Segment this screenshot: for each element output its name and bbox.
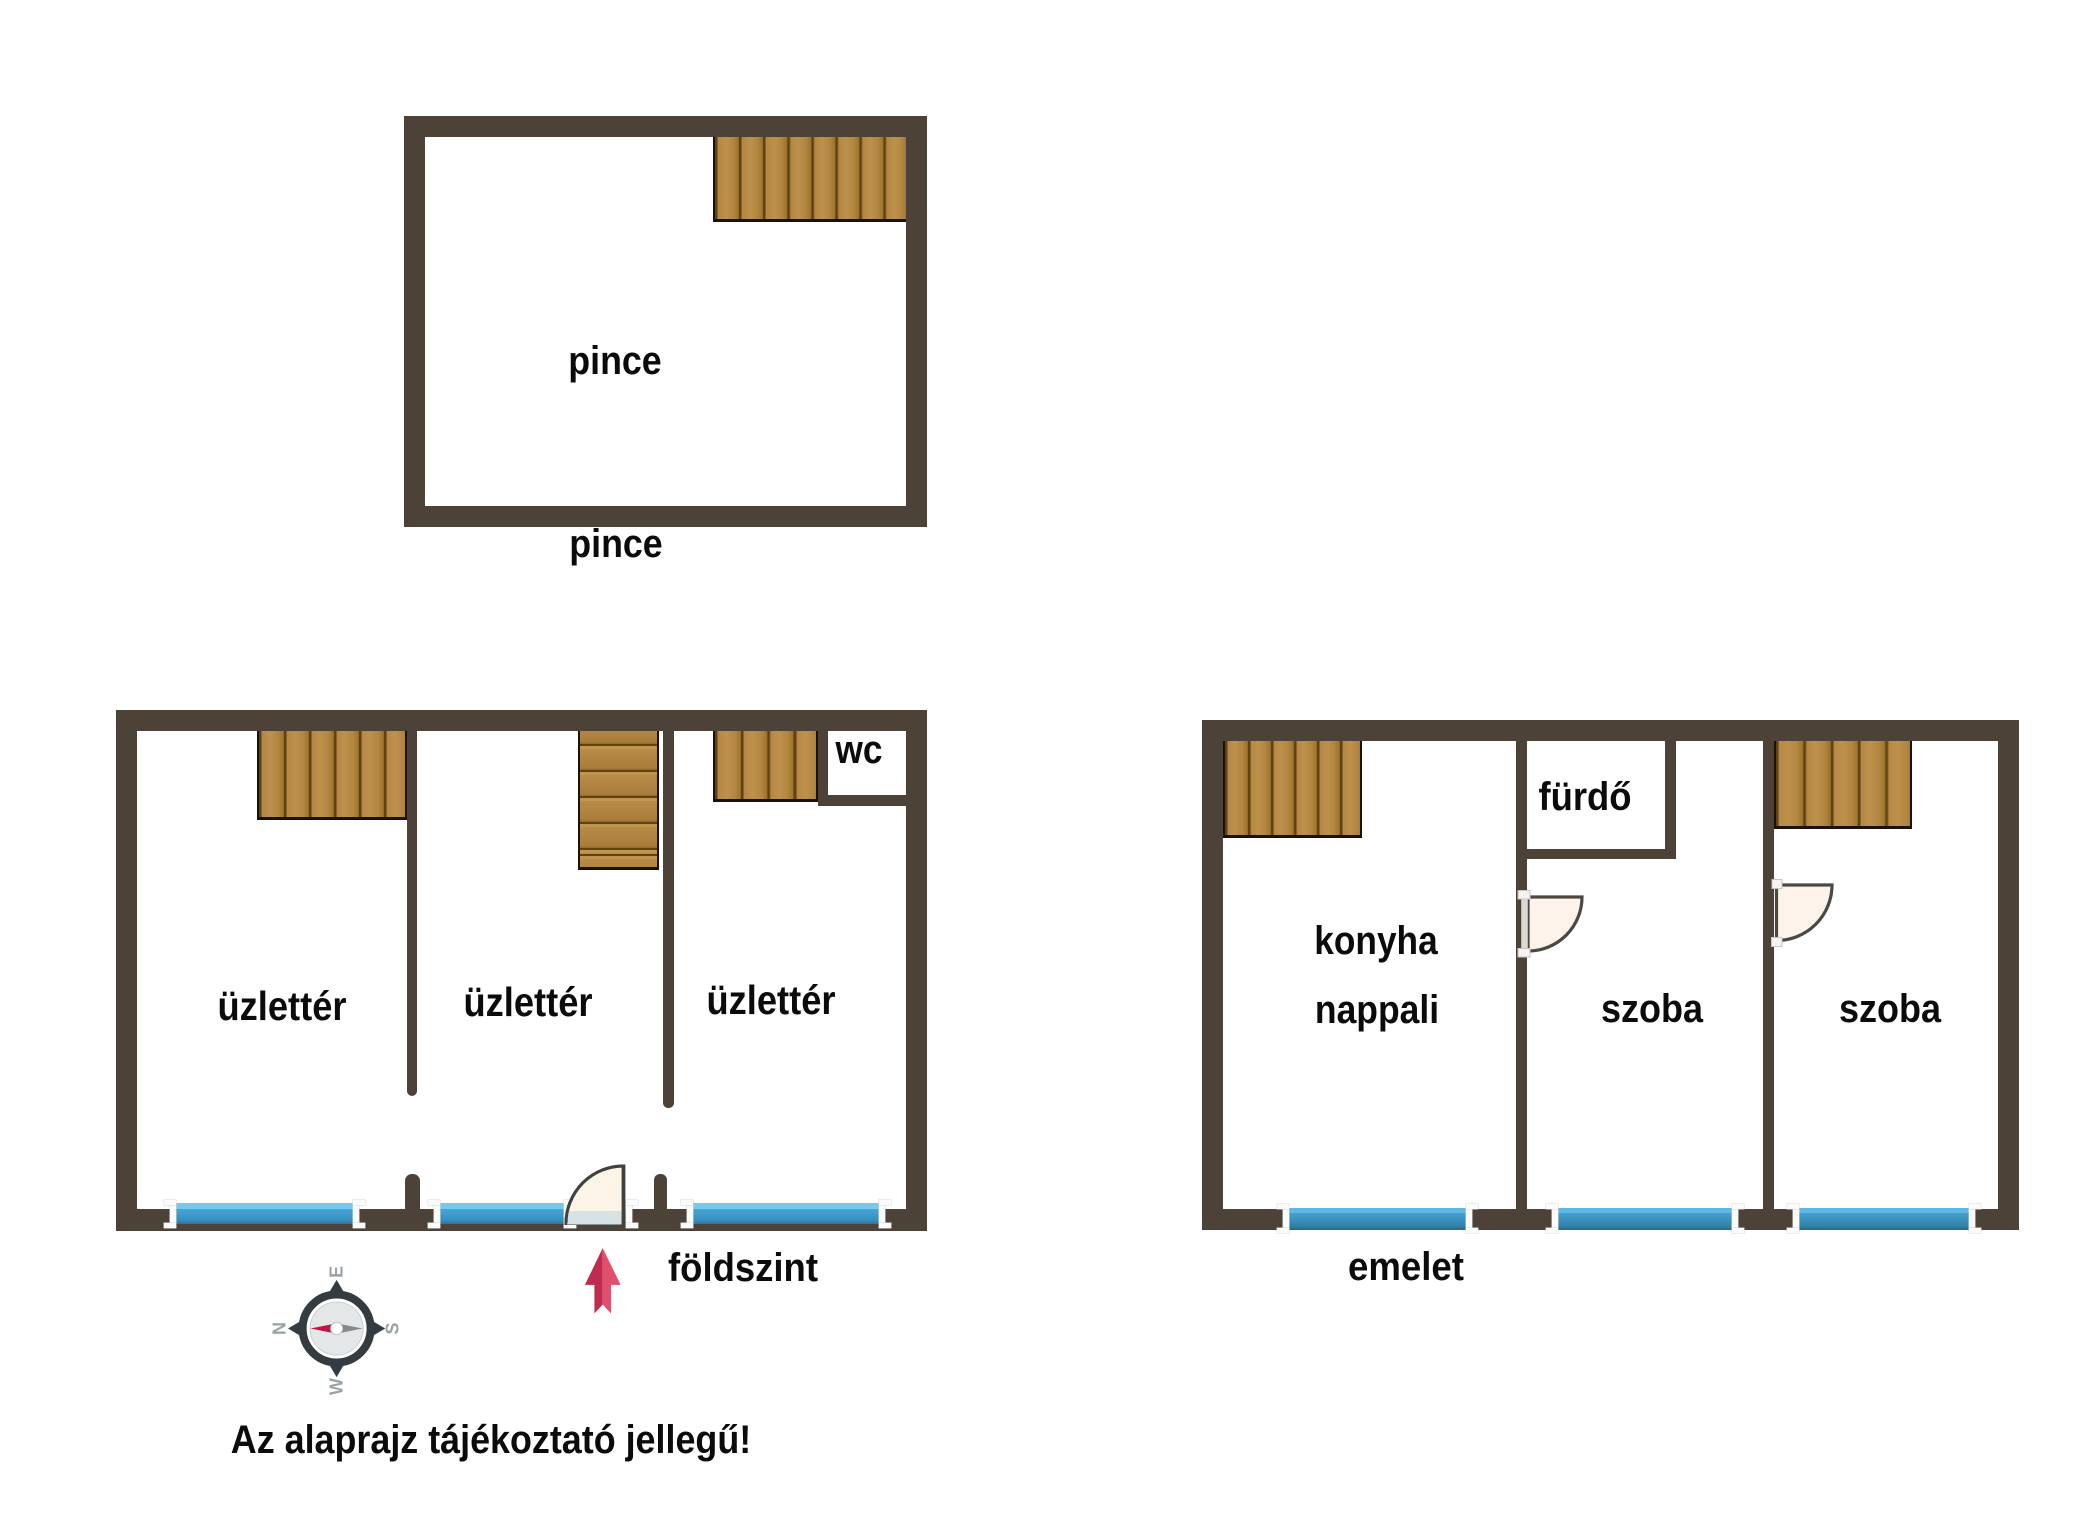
svg-text:E: E (327, 1266, 347, 1278)
svg-text:S: S (383, 1322, 403, 1334)
svg-text:W: W (327, 1378, 347, 1395)
svg-text:N: N (270, 1322, 290, 1335)
